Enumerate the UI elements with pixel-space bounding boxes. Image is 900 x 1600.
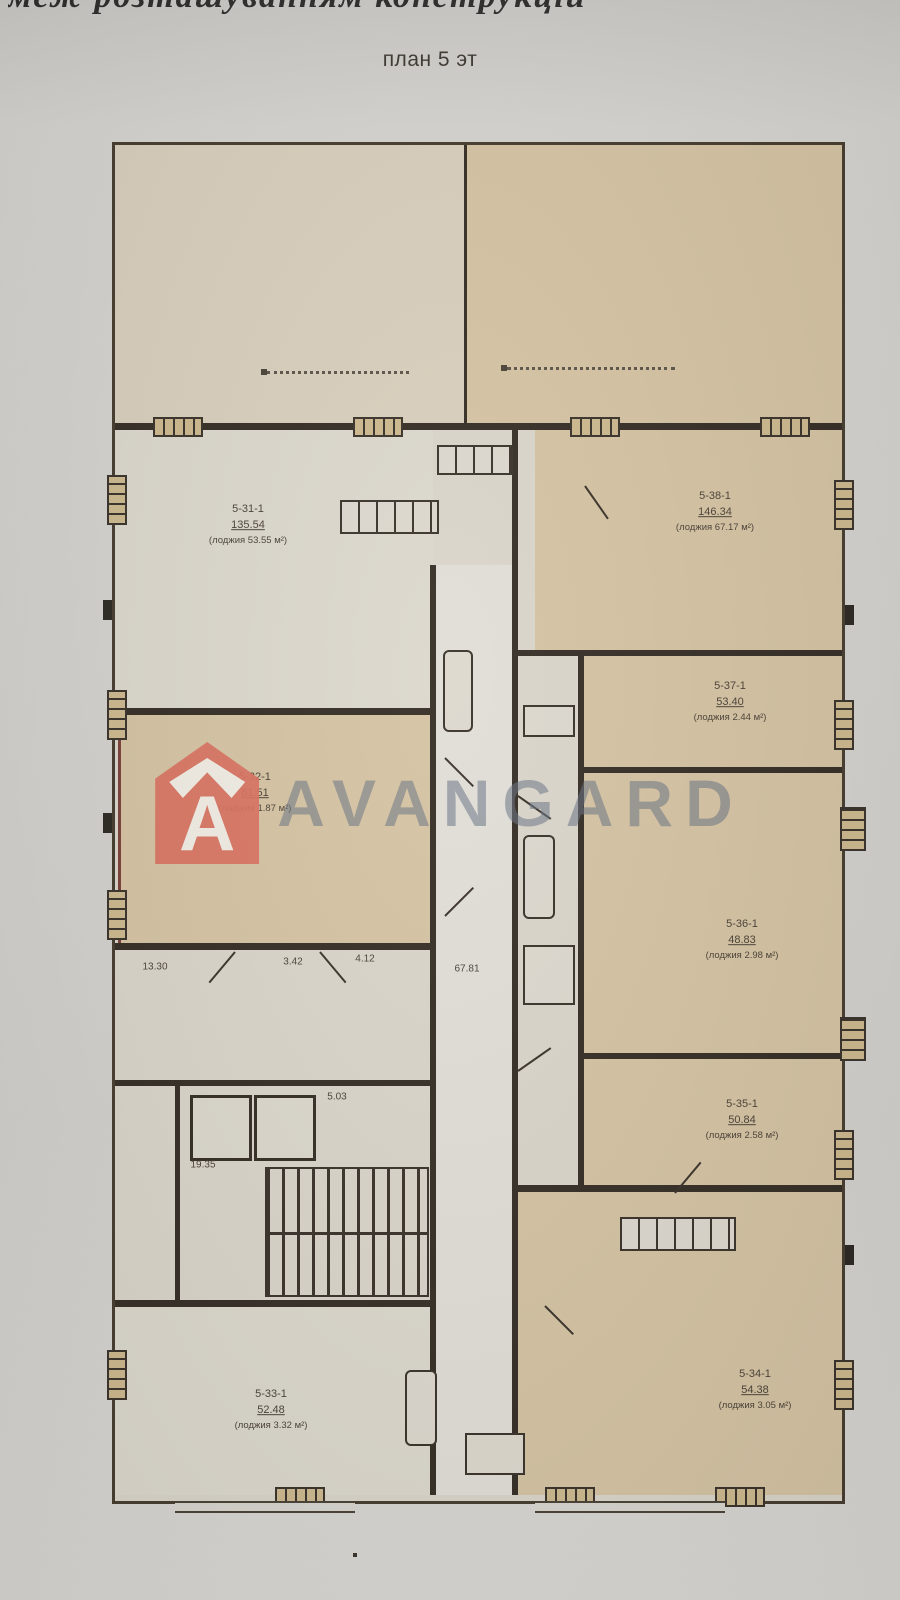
door [319,951,346,983]
kitchen-counter [620,1217,736,1251]
room-5-32-1-outline [118,712,433,946]
exterior-wall-top [115,423,842,430]
hall-area-number-3: 4.12 [355,954,374,965]
room-5-38-1 [535,430,842,650]
stair-area-number: 19.35 [190,1160,215,1171]
window [153,417,203,437]
wall-tick [103,813,112,833]
room-label-5-35-1: 5-35-1 50.84 (лоджия 2.58 м²) [706,1097,779,1143]
room-label-5-31-1: 5-31-1 135.54 (лоджия 53.55 м²) [209,502,287,548]
hall-area-number-2: 3.42 [283,957,302,968]
window [834,480,854,530]
spacer [353,1553,357,1557]
lobby-area-number: 5.03 [327,1092,346,1103]
wall-tick [845,605,854,625]
window [107,890,127,940]
lift-shaft-2 [254,1095,316,1161]
balcony-rail [535,1501,725,1513]
bathtub [405,1370,437,1446]
window [834,700,854,750]
terrace-right [467,145,842,423]
terrace-left [115,145,464,423]
corridor-wall-right [512,430,518,1495]
wall-531-532 [115,708,433,715]
door [517,1047,551,1072]
room-5-36-1 [584,773,842,1053]
room-label-5-37-1: 5-37-1 53.40 (лоджия 2.44 м²) [694,679,767,725]
wall-tick [103,600,112,620]
room-label-5-32-1: 5-32-1 61.51 (лоджия 1.87 м²) [219,770,292,816]
corridor-area-number: 67.81 [454,964,479,975]
window [760,417,810,437]
room-label-5-33-1: 5-33-1 52.48 (лоджия 3.32 м²) [235,1387,308,1433]
terrace-divider-wall [464,145,467,423]
room-5-31-1 [115,430,433,708]
bath-fixture [437,445,513,475]
wall-hall-stairs [115,1080,433,1086]
room-label-5-34-1: 5-34-1 54.38 (лоджия 3.05 м²) [719,1367,792,1413]
bath-fixture [523,945,575,1005]
hall-area-number-1: 13.30 [142,962,167,973]
room-label-5-36-1: 5-36-1 48.83 (лоджия 2.98 м²) [706,917,779,963]
room-label-5-38-1: 5-38-1 146.34 (лоджия 67.17 м²) [676,489,754,535]
bath-fixture [465,1433,525,1475]
plan-title: план 5 эт [0,48,860,72]
window [107,1350,127,1400]
door [517,795,551,820]
wall-537-536 [578,767,842,773]
clipped-caption-text: меж розташуванням конструкцій [8,0,898,18]
window-bay [840,1017,866,1061]
bathtub [443,650,473,732]
floorplan-drawing: 5-31-1 135.54 (лоджия 53.55 м²) 5-32-1 6… [112,142,845,1504]
wall-tick [845,1245,854,1265]
window [107,475,127,525]
service-strip-wall [578,650,584,1192]
window [834,1360,854,1410]
window [353,417,403,437]
bathtub [523,835,555,919]
staircase [265,1167,429,1297]
window [834,1130,854,1180]
window [570,417,620,437]
kitchen-counter [340,500,439,534]
wall-536-535 [578,1053,842,1059]
stair-landing [267,1232,427,1235]
door [209,951,236,983]
wall-stairs-533 [115,1300,433,1307]
terrace-dashed-line-right [507,367,675,370]
bath-fixture [523,705,575,737]
lift-shaft-1 [190,1095,252,1161]
stair-block-wall [175,1086,180,1300]
terrace-dashed-line-left [267,371,409,374]
balcony-rail [175,1501,355,1513]
corridor-wall-left [430,565,436,1495]
window-bay [840,807,866,851]
window [107,690,127,740]
wall-538-537 [512,650,842,656]
scanned-floorplan-photo: меж розташуванням конструкцій план 5 эт [0,0,900,1600]
wall-532-hall [115,943,433,950]
